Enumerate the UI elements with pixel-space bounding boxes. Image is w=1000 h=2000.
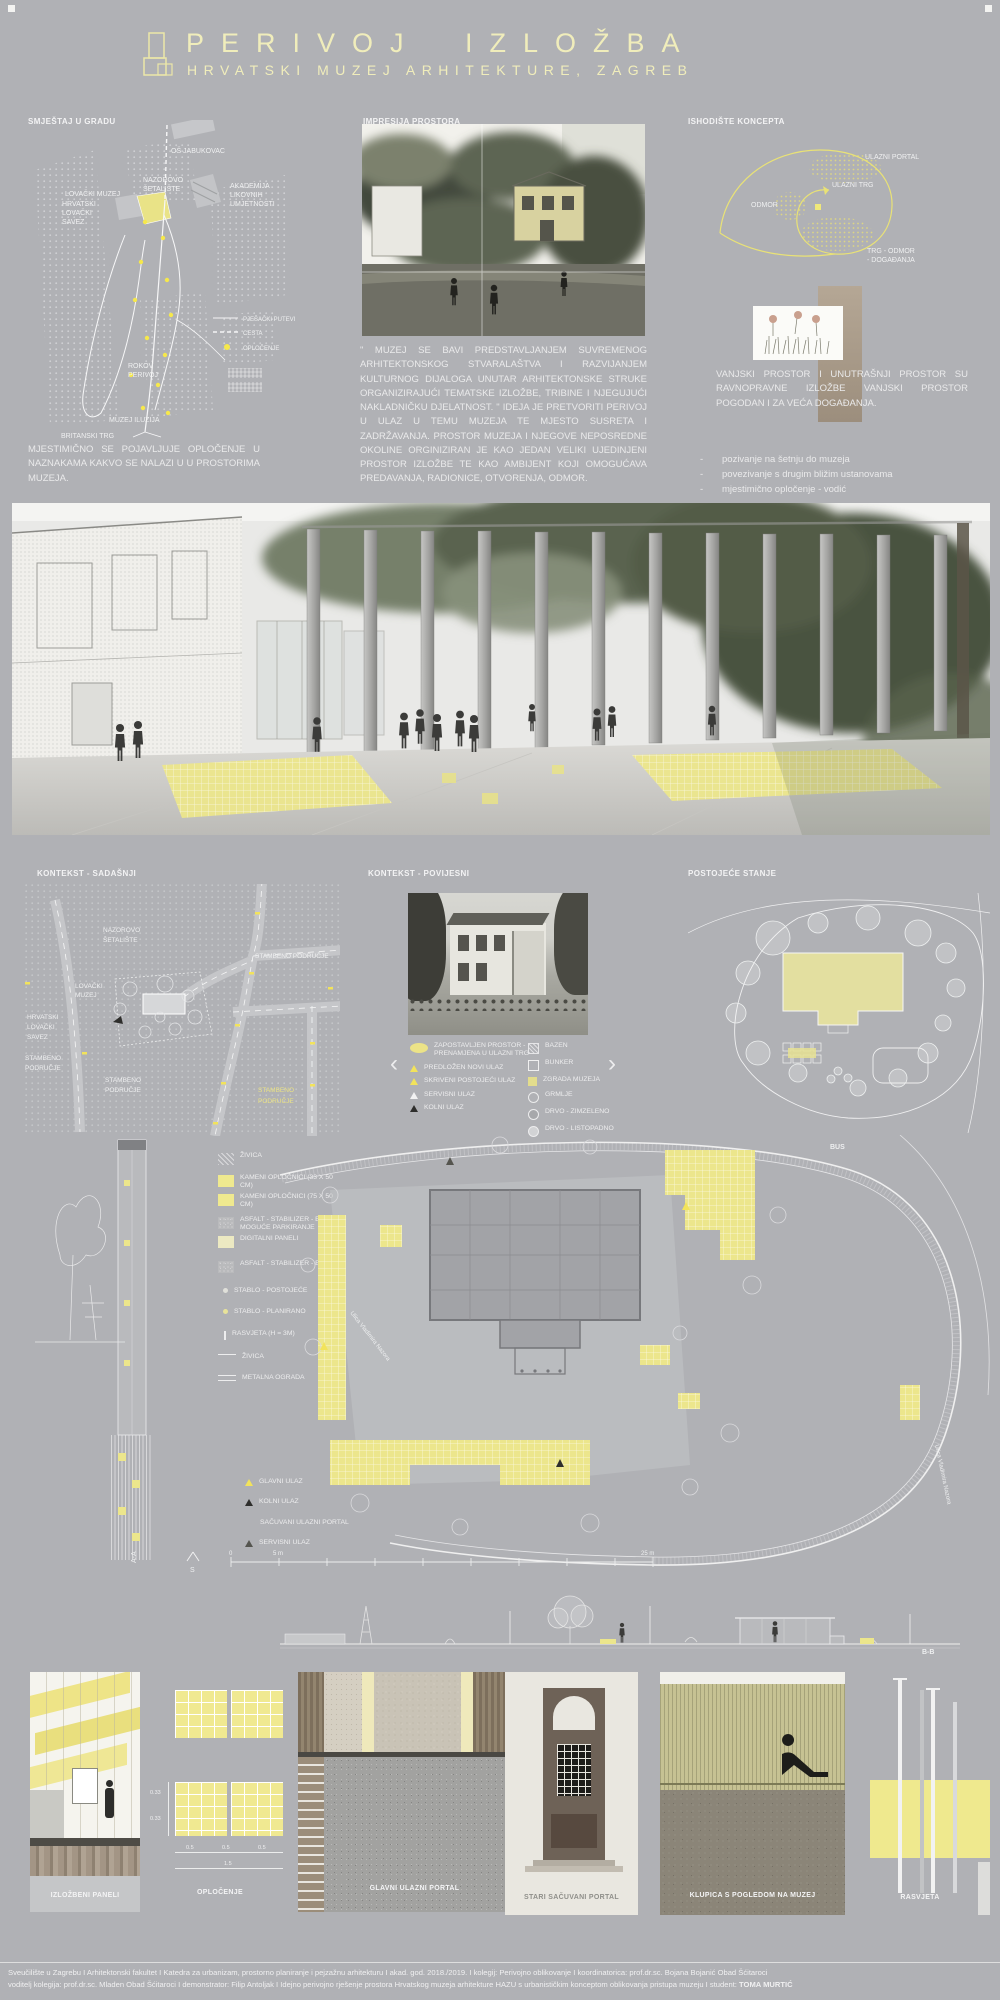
footer-line2: voditelj kolegija: prof.dr.sc. Mladen Ob…: [8, 1979, 992, 1991]
ground-band: [30, 1838, 140, 1846]
detail-panel-old-portal: STARI SAČUVANI PORTAL: [505, 1672, 638, 1915]
legend-item: GLAVNI ULAZ: [245, 1478, 425, 1486]
legend-item: SERVISNI ULAZ: [410, 1091, 530, 1099]
legend-item: KOLNI ULAZ: [410, 1104, 530, 1112]
diagram-label: ULAZNI PORTAL: [865, 154, 919, 161]
brick-strip: [298, 1757, 324, 1912]
legend-label: PREDLOŽEN NOVI ULAZ: [424, 1064, 503, 1072]
north-arrow-icon: [187, 1552, 199, 1561]
map-label: MUZEJ ILUZIJA: [109, 417, 160, 424]
map-label: ŠETALIŠTE: [143, 184, 181, 193]
map-label: HRVATSKI: [62, 201, 96, 208]
service-entrance-icon: [245, 1540, 253, 1547]
vehicle-entrance-icon: [410, 1105, 418, 1112]
footer-credits: Sveučilište u Zagrebu I Arhitektonski fa…: [0, 1962, 1000, 2000]
tree-shadow: [772, 733, 990, 835]
scale-bar: S 0 5 m 25 m: [183, 1548, 683, 1578]
wall-section: [285, 1634, 345, 1644]
bullet-text: mjestimično opločenje - vodić: [722, 482, 846, 497]
portal-body: [543, 1688, 605, 1860]
legend-label: SERVISNI ULAZ: [259, 1539, 310, 1547]
carousel-prev-icon[interactable]: ‹: [390, 1052, 398, 1076]
logo-icon: [142, 31, 178, 81]
map-label: NAZOROVO: [103, 927, 140, 934]
historic-photo: [408, 893, 588, 1035]
panel-label: GLAVNI ULAZNI PORTAL: [324, 1885, 505, 1892]
section-elevation-strip: [110, 1140, 152, 1560]
portal-step: [525, 1866, 623, 1872]
villa-porch: [512, 931, 544, 995]
legend-item: ZAPOSTAVLJEN PROSTOR - PRENAMJENA U ULAZ…: [410, 1042, 530, 1059]
pergola-paving: [788, 1048, 816, 1058]
impression-collage: [362, 124, 645, 336]
legend-item: PREDLOŽEN NOVI ULAZ: [410, 1064, 530, 1072]
scale-5m: 5 m: [273, 1551, 283, 1557]
north-label: S: [190, 1567, 195, 1574]
legend-label: BAZEN: [545, 1042, 568, 1050]
sitting-figure: [660, 1684, 845, 1790]
map-label: PODRUČJE: [258, 1096, 294, 1105]
map-label: ROKOV: [128, 363, 154, 370]
section-b-label: B-B: [922, 1649, 934, 1656]
legend-item: BUNKER: [528, 1059, 633, 1071]
vanjski-paragraph: VANJSKI PROSTOR I UNUTRAŠNJI PROSTOR SU …: [716, 368, 968, 411]
map-label: PODRUČJE: [25, 1063, 61, 1072]
bullet-dash: -: [700, 452, 722, 467]
legend-item: SAČUVANI ULAZNI PORTAL: [245, 1519, 425, 1527]
legend-item: DRVO - ZIMZELENO: [528, 1108, 633, 1120]
map-label: LOVAČKI: [75, 981, 103, 990]
wall-block: [30, 1790, 64, 1838]
portal-grid-window: [557, 1744, 591, 1796]
paver-grid: [231, 1782, 283, 1836]
granite-field: GLAVNI ULAZNI PORTAL: [324, 1757, 505, 1912]
map-label: UMJETNOSTI: [230, 201, 275, 208]
footer-line2-text: voditelj kolegija: prof.dr.sc. Mladen Ob…: [8, 1980, 737, 1989]
bench-stone: KLUPICA S POGLEDOM NA MUZEJ: [660, 1790, 845, 1915]
yellow-slot: [461, 1672, 473, 1752]
dim-total: 1.5: [224, 1861, 232, 1867]
light-band: [870, 1780, 990, 1858]
legend-label: GRMLJE: [545, 1091, 573, 1099]
dim-h2: 0.5: [222, 1845, 230, 1851]
flower-doodle: [812, 315, 820, 323]
map-label: MUZEJ: [75, 992, 97, 999]
yellow-bench: [600, 1639, 616, 1644]
villa-roof: [447, 913, 550, 925]
legend-label: ZGRADA MUZEJA: [543, 1076, 600, 1084]
legend-item: BAZEN: [528, 1042, 633, 1054]
scale-25m: 25 m: [641, 1551, 654, 1557]
photo-villa: [450, 923, 546, 995]
villa-window: [494, 935, 505, 951]
panel-sketch: [30, 1672, 140, 1838]
portal-door: [551, 1814, 597, 1848]
pole-cap: [926, 1688, 940, 1690]
portal-arch: [553, 1696, 595, 1730]
current-context-map: NAZOROVO ŠETALIŠTE STAMBENO PODRUČJE LOV…: [25, 884, 340, 1136]
legend-label: CESTA: [243, 331, 263, 337]
student-name: TOMA MURTIĆ: [739, 1980, 793, 1989]
panel-label: OPLOČENJE: [150, 1889, 290, 1896]
wood-slats: [298, 1672, 324, 1752]
neglected-space-icon: [410, 1043, 428, 1053]
bullet-dash: -: [700, 467, 722, 482]
historic-legend-right: BAZEN BUNKER ZGRADA MUZEJA GRMLJE DRVO -…: [528, 1042, 633, 1142]
bullet-item: -mjestimično opločenje - vodić: [700, 482, 980, 497]
bullet-item: -pozivanje na šetnju do muzeja: [700, 452, 980, 467]
crop-mark: [985, 5, 992, 12]
stone-field: [374, 1672, 461, 1752]
legend-label: SERVISNI ULAZ: [424, 1091, 475, 1099]
map-label: SAVEZ: [27, 1034, 48, 1041]
map-label: STAMBENO: [25, 1055, 61, 1062]
map-label: LOVAČKI: [62, 208, 92, 217]
white-strip: [978, 1862, 990, 1915]
page-subtitle: HRVATSKI MUZEJ ARHITEKTURE, ZAGREB: [187, 62, 693, 78]
legend-item: GRMLJE: [528, 1091, 633, 1103]
heading-kontekst-povijesni: KONTEKST - POVIJESNI: [368, 869, 469, 878]
tree-trunk: [957, 523, 969, 738]
flower-doodle: [769, 315, 777, 323]
existing-state-plan: [688, 893, 990, 1133]
legend-label: ZAPOSTAVLJEN PROSTOR - PRENAMJENA U ULAZ…: [434, 1042, 530, 1059]
map-label: AKADEMIJA: [230, 183, 270, 190]
map-label: SAVEZ: [62, 219, 85, 226]
spiral-arrowhead: [823, 186, 829, 195]
legend-label: DRVO - LISTOPADNO: [545, 1125, 614, 1133]
villa-window: [458, 935, 469, 951]
panel-label: RASVJETA: [865, 1894, 975, 1901]
legend-label: SAČUVANI ULAZNI PORTAL: [260, 1519, 349, 1527]
bunker-icon: [528, 1060, 539, 1071]
dim-v1: 0.33: [150, 1790, 161, 1796]
map-label: STAMBENO: [105, 1077, 141, 1084]
map-label: PODRUČJE: [105, 1085, 141, 1094]
panel-label: IZLOŽBENI PANELI: [30, 1892, 140, 1899]
texture-strip: [30, 1846, 140, 1876]
wood-slats: [473, 1672, 505, 1752]
map-label: LOVAČKI: [27, 1022, 55, 1031]
dim-line-h: [175, 1852, 283, 1853]
grass-band: [660, 1684, 845, 1790]
detail-panel-paving: 0.33 0.33 0.5 0.5 0.5 1.5 OPLOČENJE: [150, 1672, 290, 1912]
bullet-text: pozivanje na šetnju do muzeja: [722, 452, 850, 467]
new-entrance-icon: [410, 1065, 418, 1072]
map-label: PERIVOJ: [128, 372, 158, 379]
light-pole: [920, 1690, 924, 1893]
sketch-card: [753, 306, 843, 360]
detail-panel-lighting: RASVJETA: [865, 1672, 990, 1915]
scale-0: 0: [229, 1551, 233, 1557]
legend-label: PJEŠAČKI PUTEVI: [243, 316, 296, 323]
paver-grid: [175, 1782, 227, 1836]
footer-line1: Sveučilište u Zagrebu I Arhitektonski fa…: [8, 1967, 992, 1979]
heading-kontekst-sadasnji: KONTEKST - SADAŠNJI: [37, 869, 136, 878]
dim-line-total: [175, 1868, 283, 1869]
legend-item: SERVISNI ULAZ: [245, 1539, 425, 1547]
vehicle-entrance-icon: [245, 1499, 253, 1506]
map-label: BRITANSKI TRG: [61, 433, 114, 438]
flower-doodle: [794, 311, 802, 319]
map-label: NAZOROVO: [143, 177, 184, 184]
photo-tree-right: [554, 893, 588, 995]
yellow-dot-icon: [224, 344, 230, 350]
legend-label: DRVO - ZIMZELENO: [545, 1108, 609, 1116]
historic-legend-left: ZAPOSTAVLJEN PROSTOR - PRENAMJENA U ULAZ…: [410, 1042, 530, 1118]
shrub-icon: [528, 1092, 539, 1103]
bus-label: BUS: [830, 1144, 845, 1151]
entrance-legend: GLAVNI ULAZ KOLNI ULAZ SAČUVANI ULAZNI P…: [245, 1478, 425, 1553]
dim-v2: 0.33: [150, 1816, 161, 1822]
yellow-slot: [362, 1672, 374, 1752]
diagram-label: ODMOR: [751, 202, 778, 209]
master-siteplan: BUS Ulica Vladimira Nazora Ulica Vladimi…: [30, 1135, 990, 1580]
paving-grid-symbol: [228, 382, 262, 392]
heading-postojece-stanje: POSTOJEĆE STANJE: [688, 869, 776, 878]
legend-label: KOLNI ULAZ: [424, 1104, 464, 1112]
legend-label: SKRIVENI POSTOJEĆI ULAZ: [424, 1077, 515, 1085]
panel-label: KLUPICA S POGLEDOM NA MUZEJ: [660, 1892, 845, 1899]
main-entrance-icon: [245, 1479, 253, 1486]
white-house: [372, 186, 422, 256]
legend-item: KOLNI ULAZ: [245, 1498, 425, 1506]
light-pole: [953, 1702, 957, 1893]
building-section: [735, 1618, 844, 1644]
detail-panel-exhibition: IZLOŽBENI PANELI: [30, 1672, 140, 1912]
museum-footprint: [783, 953, 903, 1025]
dim-line-v: [168, 1782, 169, 1836]
crop-mark: [8, 5, 15, 12]
map-label: OŠ JABUKOVAC: [171, 146, 225, 155]
bullet-dash: -: [700, 482, 722, 497]
node-square: [815, 204, 821, 210]
tree-sketch: [35, 1196, 125, 1342]
map-label: HRVATSKI: [27, 1014, 59, 1021]
map-label: ŠETALIŠTE: [103, 935, 138, 944]
map-label: LIKOVNIH: [230, 192, 263, 199]
photo-hedge: [408, 997, 588, 1011]
paver-grid: [175, 1690, 227, 1738]
panel-label: STARI SAČUVANI PORTAL: [511, 1894, 632, 1901]
villa-window: [458, 963, 469, 981]
museum-paragraph: " MUZEJ SE BAVI PREDSTAVLJANJEM SUVREMEN…: [360, 344, 647, 487]
diagram-label: TRG - ODMOR: [867, 248, 915, 255]
photo-tree-left: [408, 893, 446, 1001]
villa-window: [476, 963, 487, 981]
road-label: Ulica Vladimira Nazora: [933, 1444, 952, 1506]
portal-elevation: [298, 1672, 505, 1752]
legend-label: GLAVNI ULAZ: [259, 1478, 303, 1486]
museum-steps: [828, 1025, 848, 1033]
dim-h1: 0.5: [186, 1845, 194, 1851]
pool-icon: [528, 1043, 539, 1054]
map-label: STAMBENO: [258, 1087, 294, 1094]
legend-label: OPLOČENJE: [243, 345, 279, 352]
diagram-label: ULAZNI TRG: [832, 182, 874, 189]
villa-window: [476, 935, 487, 951]
diagram-label: - DOGAĐANJA: [867, 257, 915, 264]
map-label: LOVAČKI MUZEJ: [65, 189, 120, 198]
main-render: [12, 503, 990, 835]
sky-strip: [660, 1672, 845, 1684]
detail-panel-main-portal: GLAVNI ULAZNI PORTAL: [298, 1672, 505, 1912]
bullet-item: -povezivanje s drugim bližim ustanovama: [700, 467, 980, 482]
service-entrance-icon: [410, 1092, 418, 1099]
dotted-clusters: [773, 153, 881, 251]
figure-head: [106, 1780, 113, 1787]
hidden-entrance-icon: [410, 1078, 418, 1085]
museum-building-icon: [528, 1077, 537, 1086]
evergreen-tree-icon: [528, 1109, 539, 1120]
legend-label: KOLNI ULAZ: [259, 1498, 299, 1506]
dim-h3: 0.5: [258, 1845, 266, 1851]
display-frame: [72, 1768, 98, 1804]
map-label: STAMBENO PODRUČJE: [255, 951, 329, 960]
panel-plinth: IZLOŽBENI PANELI: [30, 1876, 140, 1912]
detail-panel-bench: KLUPICA S POGLEDOM NA MUZEJ: [660, 1672, 845, 1915]
bullet-list: -pozivanje na šetnju do muzeja -poveziva…: [700, 452, 980, 498]
light-pole: [898, 1680, 902, 1893]
paving-grid-symbol: [228, 368, 262, 378]
note-paragraph: MJESTIMIČNO SE POJAVLJUJE OPLOČENJE U NA…: [28, 443, 260, 486]
section-a-label: A-A: [131, 1551, 138, 1563]
yellow-bench: [860, 1638, 874, 1644]
legend-item: ZGRADA MUZEJA: [528, 1076, 633, 1086]
paver-grid: [231, 1690, 283, 1738]
bullet-text: povezivanje s drugim bližim ustanovama: [722, 467, 893, 482]
stone-block: [324, 1672, 362, 1752]
legend-item: SKRIVENI POSTOJEĆI ULAZ: [410, 1077, 530, 1085]
city-location-map: OŠ JABUKOVAC NAZOROVO ŠETALIŠTE LOVAČKI …: [25, 120, 305, 438]
heading-ishodiste-koncepta: ISHODIŠTE KONCEPTA: [688, 117, 785, 126]
legend-label: BUNKER: [545, 1059, 573, 1067]
page-title: PERIVOJ IZLOŽBA: [186, 28, 697, 59]
section-bb: B-B: [270, 1586, 970, 1666]
pole-cap: [893, 1678, 907, 1680]
light-pole: [931, 1690, 935, 1893]
figure-body: [105, 1788, 114, 1818]
presentation-board: PERIVOJ IZLOŽBA HRVATSKI MUZEJ ARHITEKTU…: [0, 0, 1000, 2000]
